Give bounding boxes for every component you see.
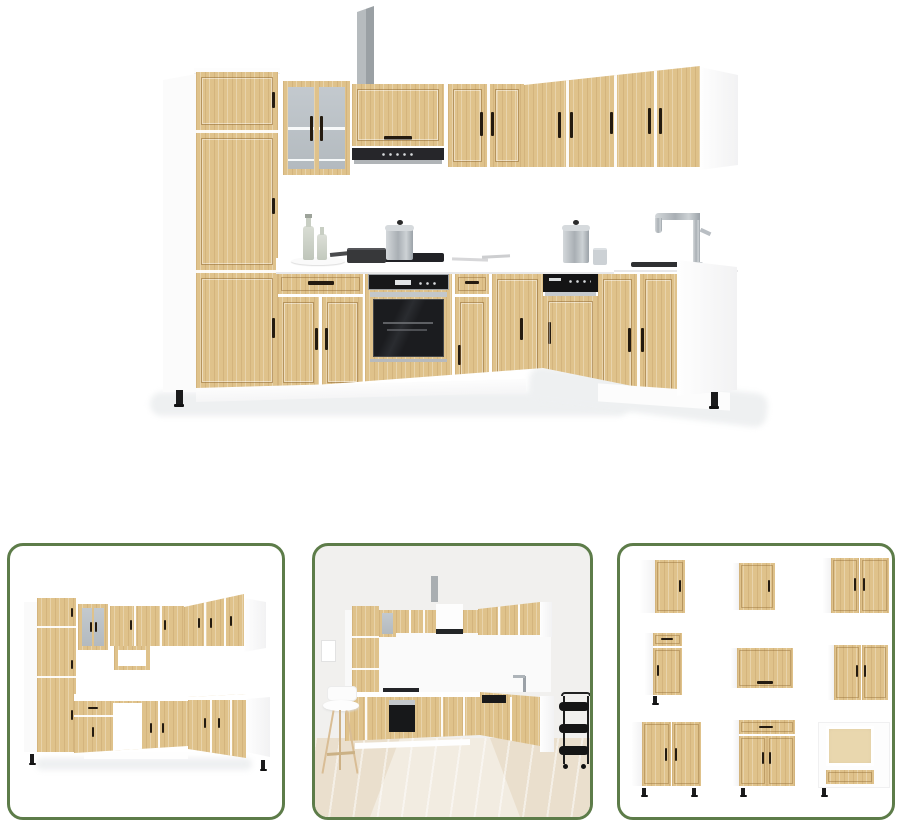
unit-drawer	[826, 770, 874, 784]
handle	[458, 345, 461, 365]
thumbnail-kitchen-set-isolated[interactable]	[7, 543, 285, 820]
unit-drawer	[739, 720, 795, 734]
bottle-neck	[306, 217, 311, 227]
door-gap	[37, 626, 76, 628]
faucet-column	[693, 215, 700, 266]
handle-bar	[759, 726, 773, 728]
unit-base-cabinet-drawer	[645, 633, 683, 705]
bottle-cap	[305, 214, 312, 218]
cabinet-door	[455, 297, 489, 388]
bottle	[317, 234, 327, 260]
mini-tall-side-panel	[24, 602, 38, 752]
shelf	[288, 159, 314, 161]
mini-countertop-right	[188, 694, 246, 700]
thumbnail-kitchen-room-scene[interactable]	[312, 543, 593, 820]
mini-oven-slot	[113, 703, 142, 753]
cabinet-foot	[822, 788, 826, 796]
handle	[164, 620, 166, 630]
handle	[864, 665, 866, 677]
unit-side-panel	[640, 560, 655, 613]
hood-controls	[380, 152, 416, 157]
unit-door	[739, 563, 775, 610]
door-gap	[352, 636, 379, 638]
cabinet-foot	[653, 696, 657, 704]
handle	[480, 112, 483, 136]
handle	[768, 580, 770, 592]
cabinet-foot	[261, 760, 265, 770]
handle	[665, 748, 667, 761]
thumbnail-cabinet-units-grid[interactable]	[617, 543, 895, 820]
door-gap	[158, 701, 160, 753]
handle	[863, 578, 865, 591]
cabinet-door	[598, 274, 637, 398]
tall-cabinet-front	[196, 72, 278, 388]
handle	[210, 618, 212, 628]
mini-plinth	[84, 753, 188, 759]
unit-side-panel	[645, 633, 653, 695]
handle	[675, 748, 677, 761]
cabinet-door	[196, 273, 278, 388]
handle	[491, 112, 494, 136]
cabinet-foot	[642, 788, 646, 796]
mini-wall-run	[396, 610, 436, 633]
unit-plinth	[655, 695, 680, 699]
dishwasher-control-panel	[543, 272, 598, 292]
unit-door	[653, 648, 682, 695]
mini-base-end-panel	[540, 696, 554, 752]
door-gap	[160, 606, 162, 646]
drawer-front	[455, 274, 489, 294]
handle	[762, 752, 764, 764]
oven-control-panel	[368, 274, 449, 290]
unit-wall-cabinet-double	[828, 645, 888, 700]
cart-tray	[559, 702, 589, 711]
extractor-strip	[436, 629, 463, 634]
unit-plinth	[644, 786, 698, 790]
handle	[679, 580, 681, 592]
handle	[272, 198, 275, 214]
handle	[310, 116, 313, 141]
mini-countertop	[74, 694, 188, 702]
handle	[230, 616, 232, 626]
cabinet-foot	[176, 390, 183, 406]
stool-back	[327, 686, 357, 701]
cabinet-door	[490, 84, 524, 167]
tall-cabinet-side-panel	[163, 74, 197, 392]
handle-bar	[88, 707, 98, 709]
door-gap	[463, 697, 465, 741]
shelf	[319, 159, 345, 161]
handle-bar	[757, 681, 773, 684]
drawer-gap	[74, 715, 113, 717]
handle	[856, 665, 858, 677]
mini-base-end-panel	[246, 696, 270, 760]
oven-door-glass	[373, 299, 444, 357]
cart-wheel	[581, 764, 586, 769]
mini-countertop	[345, 692, 480, 697]
backsplash	[355, 632, 551, 692]
door-gap	[423, 610, 425, 633]
mini-tall-cabinet	[37, 598, 76, 752]
unit-oven-housing	[818, 722, 890, 800]
drawer-front	[278, 274, 363, 294]
cabinet-door	[196, 72, 278, 130]
floor-shadow	[36, 758, 252, 770]
handle	[659, 108, 662, 134]
handle	[71, 710, 73, 720]
mini-glass-cabinet	[78, 604, 108, 650]
oven-housing	[365, 274, 452, 388]
unit-door	[655, 560, 685, 613]
mini-cooktop	[383, 688, 419, 692]
cart-wheel	[563, 764, 568, 769]
dishwasher-buttons	[567, 279, 591, 283]
wall-cabinet-end-panel	[700, 64, 738, 170]
oven-bottom-trim	[370, 359, 447, 362]
wall-cabinet-run-right	[524, 66, 700, 167]
door-gap	[352, 668, 379, 670]
handle	[71, 608, 73, 617]
pot-lid	[385, 225, 414, 231]
dishwasher-display	[549, 278, 561, 281]
unit-wall-cabinet-double	[823, 558, 889, 613]
mini-dishwasher-strip	[482, 695, 506, 703]
unit-wall-cabinet-small	[640, 560, 685, 613]
oven-glass-reflection	[387, 329, 427, 331]
cooking-pot	[386, 228, 413, 260]
handle	[71, 660, 73, 669]
wall-cabinet-corner	[448, 84, 524, 167]
mini-glass-cabinet	[379, 610, 396, 637]
extractor-duct	[357, 4, 374, 86]
handle	[150, 723, 152, 733]
door-gap	[134, 606, 136, 646]
cabinet-door	[640, 274, 677, 398]
cabinet-foot	[692, 788, 696, 796]
handle	[769, 752, 771, 764]
door-gap	[230, 700, 232, 758]
unit-base-cabinet-drawer-double	[733, 720, 795, 798]
unit-drawer	[653, 633, 682, 646]
mini-hood-frame	[114, 646, 150, 670]
mini-extractor	[436, 604, 463, 634]
handle	[315, 328, 318, 350]
handle-bar	[308, 281, 334, 285]
mini-base-run-right	[188, 694, 246, 758]
unit-base-cabinet-double	[632, 722, 702, 798]
handle-bar	[465, 281, 479, 284]
handle	[648, 108, 651, 134]
handle	[204, 718, 206, 728]
unit-oven-cavity	[826, 726, 874, 766]
mini-faucet	[523, 676, 526, 692]
mini-faucet-arm	[513, 675, 525, 678]
handle	[641, 328, 644, 352]
wall-cabinet-glass	[283, 81, 350, 175]
handle	[325, 328, 328, 350]
handle-bar	[661, 638, 673, 640]
cart-tray	[559, 746, 589, 755]
cart-tray	[559, 724, 589, 733]
stockpot	[563, 228, 589, 263]
pot-knob	[573, 220, 579, 225]
cabinet-foot	[741, 788, 745, 796]
unit-side-panel	[823, 558, 831, 613]
mini-oven	[389, 700, 415, 732]
door-gap	[409, 610, 411, 633]
stool-seat	[323, 700, 359, 711]
glass-pane	[382, 613, 393, 634]
mini-wall-end-panel	[244, 594, 266, 652]
handle	[130, 620, 132, 630]
mini-wall-run	[110, 606, 184, 646]
oven-glass-reflection	[383, 322, 433, 324]
door-gap	[518, 602, 520, 635]
product-image-collage	[0, 0, 900, 826]
door-gap	[204, 594, 206, 646]
mini-wall-cabinet	[463, 610, 478, 633]
handle	[272, 92, 275, 108]
wall-cabinet-over-hood	[352, 84, 444, 146]
cabinet-door	[196, 133, 278, 270]
handle	[854, 578, 856, 591]
handle	[162, 723, 164, 733]
door-gap	[37, 676, 76, 678]
cabinet-foot	[30, 754, 34, 764]
cabinet-door	[278, 297, 319, 388]
handle	[90, 622, 92, 632]
mini-base-run	[74, 701, 188, 753]
door-gap	[654, 66, 657, 167]
cabinet-door	[322, 297, 363, 388]
pot-knob	[397, 220, 403, 225]
cup	[593, 248, 607, 265]
hood-opening	[118, 650, 146, 666]
unit-side-panel	[632, 722, 642, 786]
frying-pan	[347, 248, 386, 263]
pot-lid	[562, 225, 590, 231]
handle	[558, 112, 561, 138]
door-gap	[510, 697, 512, 746]
mini-wall-run-right	[184, 594, 244, 646]
door-gap	[365, 697, 367, 741]
mini-wall-end-panel	[540, 602, 552, 637]
oven	[368, 274, 449, 362]
door-gap	[566, 66, 569, 167]
handle-bar	[384, 136, 412, 140]
extractor-hood	[352, 148, 444, 160]
faucet-spout	[655, 218, 662, 233]
bottle-neck	[320, 227, 324, 235]
unit-wall-cabinet-horizontal	[731, 648, 793, 688]
handle	[520, 318, 523, 340]
door-gap	[614, 66, 617, 167]
door-gap	[224, 594, 226, 646]
stool-leg	[339, 710, 341, 770]
handle	[610, 112, 613, 134]
handle	[628, 328, 631, 352]
faucet-lever	[700, 228, 712, 236]
mini-wall-run-right	[478, 602, 540, 635]
unit-door	[767, 736, 795, 786]
handle	[570, 112, 573, 138]
handle	[320, 116, 323, 141]
cabinet-foot	[711, 392, 718, 408]
handle	[198, 618, 200, 628]
oven-display	[395, 280, 411, 285]
base-end-panel	[677, 258, 737, 400]
unit-flap-door	[737, 648, 793, 688]
handle	[95, 622, 97, 632]
hood-underside	[354, 160, 442, 164]
unit-wall-cabinet	[733, 563, 775, 610]
door-gap	[441, 697, 443, 741]
handle	[218, 718, 220, 728]
base-run-left	[276, 272, 543, 392]
door-gap	[210, 700, 212, 758]
sink-base-cabinet	[598, 274, 677, 398]
oven-handle-bar	[370, 292, 447, 297]
mini-base-run	[345, 697, 480, 741]
wall-picture	[321, 640, 336, 662]
door-gap	[498, 602, 500, 635]
oven-knobs	[417, 281, 437, 285]
handle	[548, 322, 551, 344]
oven-trim	[389, 700, 415, 705]
handle	[272, 318, 275, 338]
handle	[657, 665, 659, 676]
mini-duct	[431, 576, 438, 602]
main-product-image[interactable]	[0, 0, 900, 535]
handle	[92, 727, 94, 737]
bottle	[303, 226, 314, 260]
